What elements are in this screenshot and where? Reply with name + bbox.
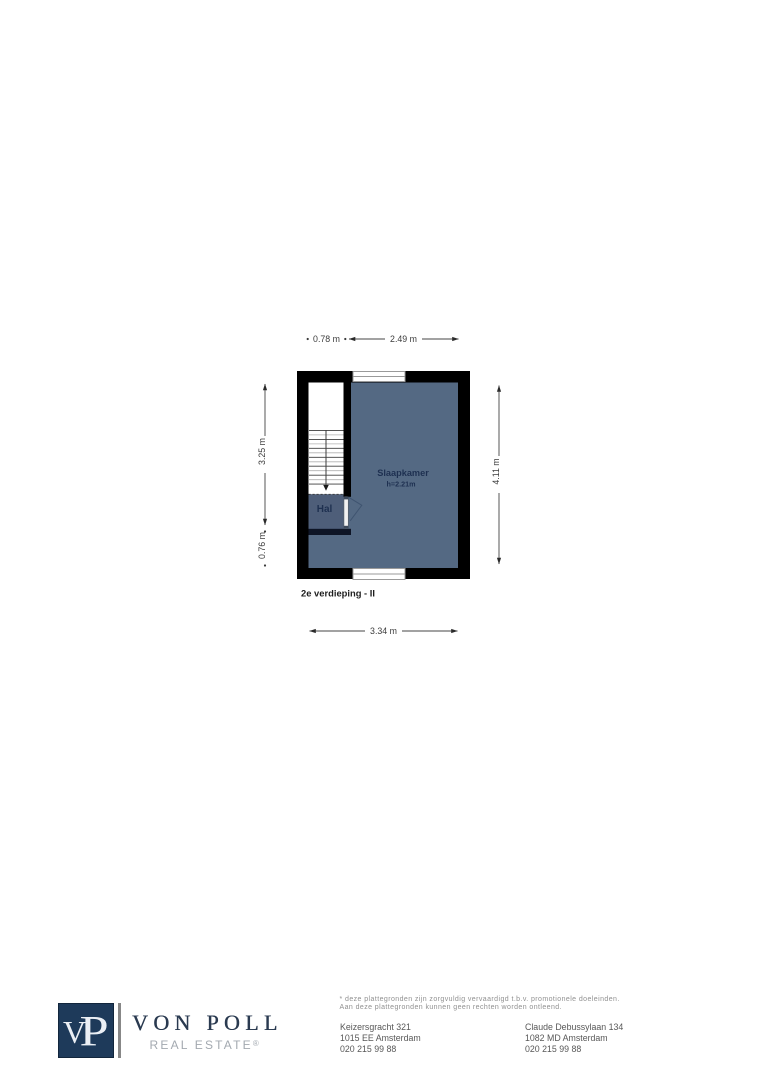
svg-text:4.11 m: 4.11 m — [491, 458, 501, 484]
svg-text:3.34 m: 3.34 m — [370, 626, 397, 636]
svg-text:3.25 m: 3.25 m — [257, 438, 267, 465]
svg-text:0.78 m: 0.78 m — [313, 334, 340, 344]
svg-text:2e verdieping - II: 2e verdieping - II — [301, 588, 375, 599]
svg-text:2.49 m: 2.49 m — [390, 334, 417, 344]
svg-text:0.76 m: 0.76 m — [257, 532, 267, 559]
svg-text:Hal: Hal — [317, 504, 333, 515]
svg-text:P: P — [79, 1008, 108, 1056]
svg-text:Slaapkamer: Slaapkamer — [377, 468, 429, 478]
svg-text:h=2.21m: h=2.21m — [387, 480, 416, 489]
